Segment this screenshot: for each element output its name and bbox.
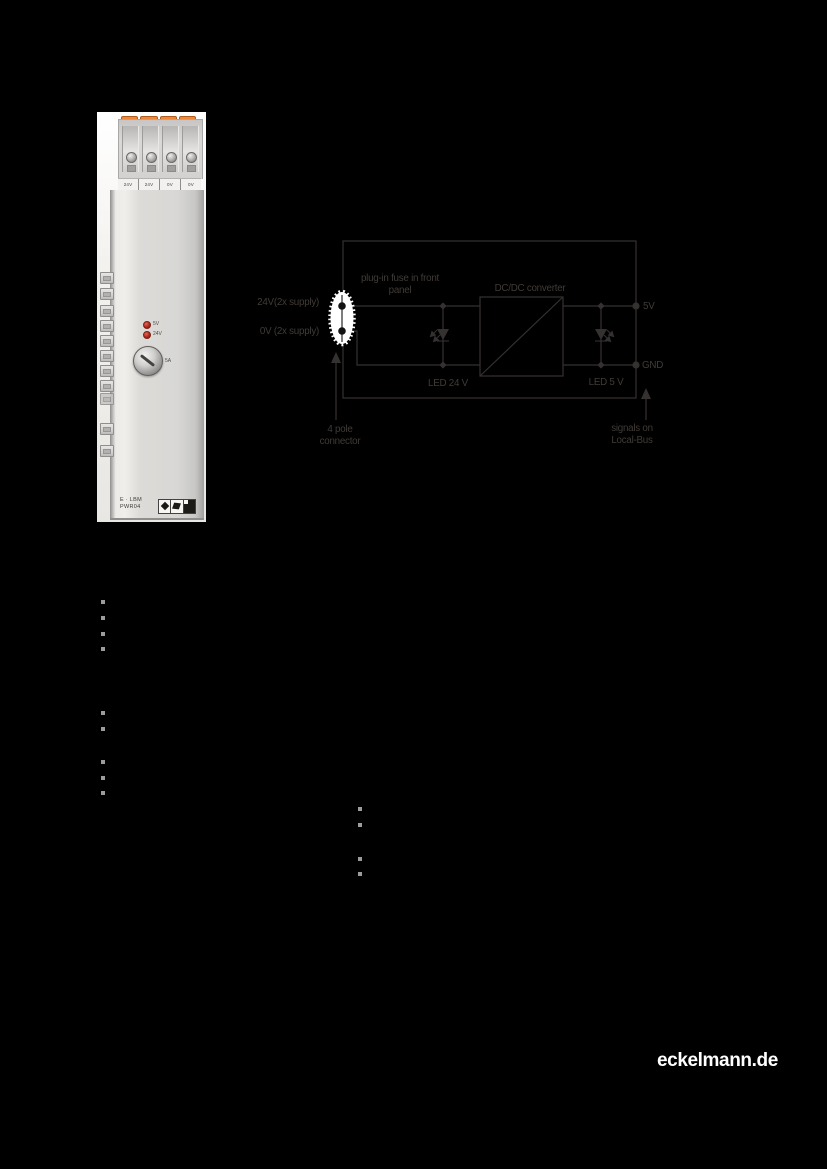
led-5v-symbol <box>595 329 614 342</box>
connector-caption-line1: 4 pole <box>327 424 353 435</box>
footer-logo: eckelmann.de <box>657 1050 778 1072</box>
terminal-wire-hole <box>187 165 196 172</box>
bus-connector-tab <box>100 272 114 284</box>
terminal-label: 24V <box>139 179 160 190</box>
terminal-screw <box>166 152 177 163</box>
fuse-note-line2: panel <box>389 285 412 296</box>
bullet-square <box>101 616 105 620</box>
terminal-slot <box>182 126 199 172</box>
device-type-label: E · LBM PWR04 <box>120 497 142 511</box>
led-24v-symbol <box>431 329 450 342</box>
bus-connector-tab <box>100 423 114 435</box>
supply-24v-label: 24V(2x supply) <box>257 297 319 308</box>
bus-connector-tab <box>100 320 114 332</box>
terminal-gnd-dot <box>632 361 639 368</box>
led-24v-indicator <box>143 331 151 339</box>
tilted-square-icon <box>171 500 183 513</box>
terminal-block <box>118 119 203 179</box>
terminal-5v-dot <box>632 302 639 309</box>
bullet-square <box>101 727 105 731</box>
terminal-label: 0V <box>160 179 181 190</box>
bullet-square <box>101 600 105 604</box>
fuse-rating-label: 5A <box>165 358 171 364</box>
bullet-square <box>358 857 362 861</box>
bullet-square <box>101 711 105 715</box>
led-5v-caption: LED 5 V <box>589 377 624 388</box>
terminal-screw <box>186 152 197 163</box>
bullet-square <box>101 647 105 651</box>
led-5v-indicator <box>143 321 151 329</box>
connector-caption-line2: connector <box>320 436 362 447</box>
terminal-slot <box>162 126 179 172</box>
terminal-label: 0V <box>181 179 201 190</box>
diamond-icon <box>159 500 171 513</box>
filled-square-icon <box>184 500 195 513</box>
terminal-label: 24V <box>118 179 139 190</box>
up-arrow-icon <box>331 352 341 363</box>
bus-caption-line2: Local-Bus <box>611 435 653 446</box>
bullet-square <box>358 807 362 811</box>
bullet-square <box>358 872 362 876</box>
module-front-panel: 5V 24V 5A E · LBM PWR04 <box>110 190 204 520</box>
bullet-square <box>101 776 105 780</box>
bullet-square <box>101 632 105 636</box>
supply-0v-label: 0V (2x supply) <box>260 326 319 337</box>
page-background: 24V 24V 0V 0V 5V 24V 5A E · LBM PWR04 <box>0 0 827 1169</box>
bullet-square <box>358 823 362 827</box>
power-module-block-diagram: plug-in fuse in front panel DC/DC conver… <box>250 235 680 450</box>
device-label-line1: E · LBM <box>120 497 142 504</box>
bus-connector-tab <box>100 380 114 392</box>
terminal-screw <box>126 152 137 163</box>
connector-pin-0v <box>338 327 346 335</box>
bus-connector-tab <box>100 350 114 362</box>
bullet-square <box>101 760 105 764</box>
connector-pin-24v <box>338 302 346 310</box>
terminal-slot <box>122 126 139 172</box>
bus-connector-tab <box>100 365 114 377</box>
led-24v-caption: LED 24 V <box>428 378 469 389</box>
fuse-holder <box>133 346 163 376</box>
terminal-wire-hole <box>147 165 156 172</box>
converter-label: DC/DC converter <box>495 283 567 294</box>
bus-caption-line1: signals on <box>611 423 653 434</box>
device-label-line2: PWR04 <box>120 504 142 511</box>
product-photo: 24V 24V 0V 0V 5V 24V 5A E · LBM PWR04 <box>97 112 206 522</box>
led-5v-label: 5V <box>153 321 159 327</box>
bus-connector-tab <box>100 393 114 405</box>
output-5v-label: 5V <box>643 301 655 312</box>
led-24v-label: 24V <box>153 331 162 337</box>
up-arrow-icon <box>641 388 651 399</box>
output-gnd-label: GND <box>642 360 663 371</box>
fuse-note-line1: plug-in fuse in front <box>361 273 440 284</box>
junction-dots <box>439 302 639 368</box>
bullet-square <box>101 791 105 795</box>
terminal-wire-hole <box>167 165 176 172</box>
bus-connector-tab <box>100 335 114 347</box>
fuse-slot <box>140 354 155 367</box>
terminal-slot <box>142 126 159 172</box>
terminal-wire-hole <box>127 165 136 172</box>
terminal-screw <box>146 152 157 163</box>
bus-connector-tab <box>100 288 114 300</box>
bus-connector-tab <box>100 305 114 317</box>
certification-icons <box>158 499 196 514</box>
bus-connector-tab <box>100 445 114 457</box>
connector-highlight-oval <box>331 292 354 344</box>
diagram-wires <box>342 241 636 398</box>
